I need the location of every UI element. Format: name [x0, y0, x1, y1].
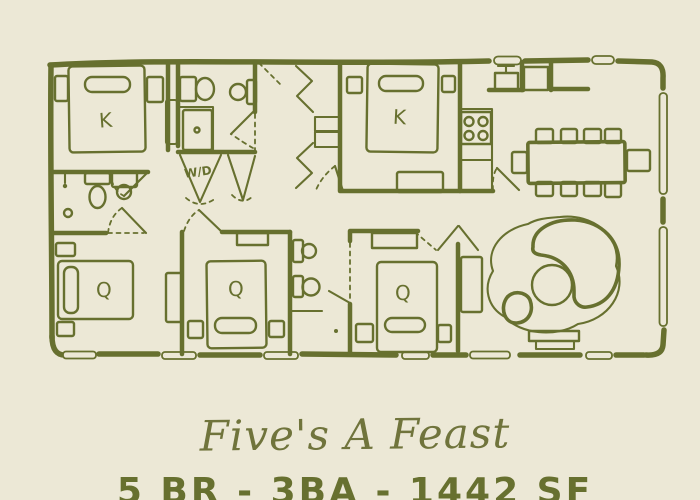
kitchen: [460, 66, 548, 190]
nightstand: [438, 325, 451, 342]
toilet-tank: [85, 173, 110, 184]
window: [592, 56, 614, 64]
bedroom-5-bed-label: Q: [395, 281, 411, 305]
hall-closet: [315, 117, 340, 147]
dining-chair: [627, 150, 650, 171]
toilet: [230, 84, 246, 100]
toilet: [303, 279, 320, 296]
nightstand: [57, 322, 74, 336]
nightstand: [356, 324, 373, 342]
nightstand: [347, 77, 362, 93]
door-leaf-bed5: [438, 226, 458, 250]
bedroom-1: K: [55, 65, 163, 152]
window: [162, 352, 196, 359]
door-arc-bed4: [184, 210, 199, 231]
bedroom-5: Q: [356, 233, 482, 352]
burner: [465, 117, 474, 126]
rug: [488, 217, 620, 333]
sink: [196, 78, 214, 100]
door-leaf-bed4: [199, 210, 222, 232]
door-zigzag-closet-top: [296, 66, 313, 112]
window: [660, 93, 668, 194]
closet-shelf: [315, 132, 340, 147]
door-leaf-kitchen: [497, 168, 519, 190]
bedroom-2: K: [347, 64, 455, 192]
bedroom-3-bed-label: Q: [96, 278, 112, 302]
door-leaf-living: [459, 226, 478, 250]
burner: [479, 117, 488, 126]
nightstand: [269, 321, 284, 337]
door-arc-bed3: [108, 208, 122, 233]
window: [470, 352, 510, 359]
door-arc-bed2: [316, 166, 335, 190]
pillow: [215, 318, 256, 333]
queen-bed: [377, 262, 437, 352]
wall-left: [51, 66, 52, 338]
closet: [237, 233, 268, 245]
dining-chair: [512, 152, 527, 173]
pillow: [85, 77, 130, 92]
dining-area: [512, 129, 650, 197]
door-leaf-bath3: [329, 291, 350, 303]
counter-cabinet: [524, 67, 548, 90]
closet-shelf: [315, 117, 340, 131]
tv-console-base: [536, 341, 574, 349]
window: [264, 352, 298, 359]
wall-top-mid: [525, 60, 588, 61]
exterior-walls: [50, 60, 664, 355]
door-arc-kitchen: [493, 168, 497, 190]
coffee-table: [532, 265, 572, 305]
nightstand: [56, 243, 75, 256]
window: [63, 352, 96, 359]
bedroom-4: Q: [188, 233, 284, 348]
kitchen-sink: [495, 73, 518, 90]
closet: [372, 233, 417, 248]
bedroom-2-bed-label: K: [392, 105, 407, 130]
burner: [465, 131, 474, 140]
ottoman: [503, 293, 531, 323]
door-leaf-bed3: [122, 208, 146, 233]
dining-table: [528, 142, 625, 184]
pillow: [64, 267, 78, 313]
door-arc-bath2: [231, 134, 253, 148]
laundry-label: W/D: [183, 163, 212, 181]
nightstand: [147, 77, 163, 102]
bedroom-1-bed-label: K: [98, 108, 114, 133]
queen-bed: [206, 261, 266, 349]
door-zigzag-closet-bottom: [296, 143, 313, 188]
shower-drain: [195, 128, 200, 133]
nightstand: [188, 321, 203, 338]
pillow: [385, 318, 425, 332]
nightstand: [442, 76, 455, 92]
shower-drain: [334, 329, 338, 333]
plan-title: Five's A Feast: [10, 410, 700, 459]
dining-chair: [605, 183, 621, 197]
plan-stats: 5 BR - 3BA - 1442 SF: [10, 474, 700, 500]
window: [586, 352, 612, 359]
pillow: [379, 76, 423, 91]
shower-drain: [64, 209, 72, 217]
sink-counter: [180, 77, 196, 101]
dresser: [461, 257, 482, 312]
nightstand: [55, 76, 68, 101]
living-room: [488, 217, 620, 349]
window: [660, 227, 668, 326]
window: [494, 57, 521, 65]
burner: [479, 131, 488, 140]
floor-plan-page: K W/D: [0, 0, 700, 500]
sofa: [533, 220, 619, 307]
door-bifold-laundry-right: [228, 155, 255, 200]
wall-bottom-right-corner: [646, 330, 664, 355]
shower: [183, 110, 212, 150]
bedroom-4-bed-label: Q: [228, 277, 244, 301]
bathroom-3: [293, 240, 338, 333]
door-arc-closet: [259, 63, 283, 87]
dresser: [166, 273, 182, 322]
pendant-light-dot: [63, 184, 67, 188]
toilet: [90, 186, 106, 208]
door-leaf-bath2: [231, 112, 253, 134]
bedroom-3: Q: [56, 243, 182, 336]
wall-top-right-corner: [618, 61, 663, 88]
